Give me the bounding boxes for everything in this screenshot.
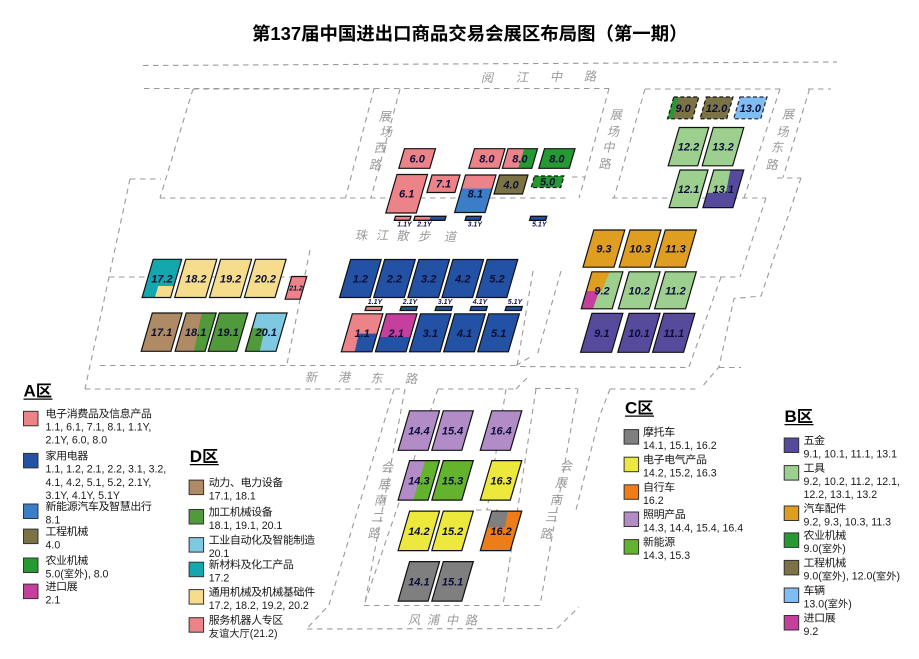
svg-text:4.2: 4.2 bbox=[454, 274, 470, 286]
svg-text:1.1: 1.1 bbox=[354, 328, 369, 340]
svg-text:14.4: 14.4 bbox=[408, 426, 429, 438]
svg-text:12.2: 12.2 bbox=[678, 142, 699, 154]
svg-text:19.2: 19.2 bbox=[220, 273, 241, 285]
svg-text:9.0: 9.0 bbox=[675, 103, 691, 115]
svg-text:8.0: 8.0 bbox=[512, 154, 528, 166]
svg-text:14.1, 15.1, 16.2: 14.1, 15.1, 16.2 bbox=[643, 440, 717, 452]
svg-text:11.3: 11.3 bbox=[665, 244, 686, 256]
svg-text:2.1: 2.1 bbox=[388, 328, 404, 340]
svg-text:12.0: 12.0 bbox=[706, 103, 728, 115]
svg-text:), 8.0: ), 8.0 bbox=[84, 568, 108, 580]
svg-text:), 12.0(: ), 12.0( bbox=[842, 571, 876, 583]
svg-text:15.3: 15.3 bbox=[442, 475, 463, 487]
svg-text:3.1Y, 4.1Y, 5.1Y: 3.1Y, 4.1Y, 5.1Y bbox=[46, 490, 120, 502]
svg-text:9.0(: 9.0( bbox=[804, 571, 823, 583]
svg-text:11.1: 11.1 bbox=[664, 328, 685, 340]
svg-text:11.2: 11.2 bbox=[665, 285, 686, 297]
svg-text:8.0: 8.0 bbox=[549, 154, 565, 166]
svg-text:5.1Y: 5.1Y bbox=[532, 221, 548, 228]
svg-text:4.1: 4.1 bbox=[456, 328, 472, 340]
svg-text:5.1Y: 5.1Y bbox=[508, 299, 524, 306]
svg-text:1.1Y: 1.1Y bbox=[397, 221, 413, 228]
svg-text:15.1: 15.1 bbox=[442, 576, 463, 588]
svg-text:9.3: 9.3 bbox=[596, 244, 611, 256]
svg-text:4.0: 4.0 bbox=[46, 539, 61, 551]
svg-text:20.1: 20.1 bbox=[209, 548, 230, 560]
svg-text:16.2: 16.2 bbox=[490, 526, 511, 538]
svg-text:3.2: 3.2 bbox=[421, 274, 436, 286]
svg-text:15.2: 15.2 bbox=[442, 526, 463, 538]
svg-text:1.1Y: 1.1Y bbox=[368, 299, 384, 306]
svg-text:9.2: 9.2 bbox=[804, 626, 819, 638]
svg-text:1.1, 1.2, 2.1, 2.2, 3.1, 3.2,: 1.1, 1.2, 2.1, 2.2, 3.1, 3.2, bbox=[46, 464, 167, 476]
svg-text:18.1, 19.1, 20.1: 18.1, 19.1, 20.1 bbox=[209, 520, 283, 532]
svg-text:14.3, 15.3: 14.3, 15.3 bbox=[643, 550, 690, 562]
svg-text:8.0: 8.0 bbox=[479, 154, 495, 166]
svg-text:17.2: 17.2 bbox=[151, 273, 172, 285]
svg-text:16.3: 16.3 bbox=[490, 475, 511, 487]
svg-text:13.0(: 13.0( bbox=[804, 598, 829, 610]
svg-text:12.1: 12.1 bbox=[678, 184, 699, 196]
svg-text:D: D bbox=[190, 447, 202, 466]
svg-text:): ) bbox=[897, 571, 901, 583]
svg-text:2.1Y: 2.1Y bbox=[402, 299, 419, 306]
svg-text:8.1: 8.1 bbox=[468, 189, 483, 201]
svg-text:7.1: 7.1 bbox=[436, 179, 451, 191]
svg-text:6.1: 6.1 bbox=[399, 189, 414, 201]
svg-text:14.3, 14.4, 15.4, 16.4: 14.3, 14.4, 15.4, 16.4 bbox=[643, 522, 743, 534]
svg-text:3.1: 3.1 bbox=[423, 328, 438, 340]
svg-text:3.1Y: 3.1Y bbox=[438, 299, 454, 306]
svg-text:14.2, 15.2, 16.3: 14.2, 15.2, 16.3 bbox=[643, 468, 717, 480]
svg-text:C: C bbox=[625, 399, 637, 418]
svg-text:4.0: 4.0 bbox=[502, 180, 519, 192]
svg-text:17.2: 17.2 bbox=[209, 573, 230, 585]
svg-text:(21.2): (21.2) bbox=[250, 628, 278, 640]
svg-text:5.0: 5.0 bbox=[540, 177, 556, 189]
svg-text:17.1: 17.1 bbox=[151, 327, 172, 339]
svg-text:15.4: 15.4 bbox=[442, 426, 463, 438]
svg-text:13.2: 13.2 bbox=[712, 142, 733, 154]
svg-text:): ) bbox=[848, 598, 852, 610]
svg-text:9.2, 10.2, 11.2, 12.1,: 9.2, 10.2, 11.2, 12.1, bbox=[804, 476, 900, 488]
svg-text:4.1Y: 4.1Y bbox=[472, 299, 489, 306]
svg-text:4.1, 4.2, 5.1, 5.2, 2.1Y,: 4.1, 4.2, 5.1, 5.2, 2.1Y, bbox=[46, 477, 152, 489]
svg-text:16.2: 16.2 bbox=[643, 495, 664, 507]
svg-text:2.1: 2.1 bbox=[46, 594, 61, 606]
svg-text:5.1: 5.1 bbox=[491, 328, 506, 340]
svg-text:10.1: 10.1 bbox=[628, 328, 649, 340]
svg-text:3.1Y: 3.1Y bbox=[468, 221, 484, 228]
svg-text:10.2: 10.2 bbox=[628, 285, 649, 297]
svg-text:1.1, 6.1, 7.1, 8.1, 1.1Y,: 1.1, 6.1, 7.1, 8.1, 1.1Y, bbox=[46, 422, 152, 434]
svg-text:17.1, 18.1: 17.1, 18.1 bbox=[209, 490, 256, 502]
svg-text:12.2, 13.1, 13.2: 12.2, 13.1, 13.2 bbox=[804, 489, 878, 501]
svg-text:18.2: 18.2 bbox=[185, 273, 206, 285]
svg-text:9.1, 10.1, 11.1, 13.1: 9.1, 10.1, 11.1, 13.1 bbox=[804, 448, 898, 460]
svg-text:13.0: 13.0 bbox=[740, 103, 762, 115]
svg-text:14.3: 14.3 bbox=[408, 475, 429, 487]
svg-text:20.1: 20.1 bbox=[254, 327, 276, 339]
svg-text:17.2, 18.2, 19.2, 20.2: 17.2, 18.2, 19.2, 20.2 bbox=[209, 600, 309, 612]
svg-text:6.0: 6.0 bbox=[410, 154, 426, 166]
svg-text:13.1: 13.1 bbox=[713, 184, 734, 196]
svg-text:14.2: 14.2 bbox=[408, 526, 429, 538]
svg-text:18.1: 18.1 bbox=[185, 327, 206, 339]
svg-text:): ) bbox=[842, 543, 846, 555]
svg-text:2.1Y: 2.1Y bbox=[416, 221, 433, 228]
svg-text:2.1Y, 6.0, 8.0: 2.1Y, 6.0, 8.0 bbox=[46, 435, 108, 447]
svg-text:9.2, 9.3, 10.3, 11.3: 9.2, 9.3, 10.3, 11.3 bbox=[804, 516, 892, 528]
svg-text:137: 137 bbox=[270, 23, 301, 44]
svg-text:1.2: 1.2 bbox=[353, 274, 368, 286]
svg-text:16.4: 16.4 bbox=[490, 426, 511, 438]
svg-text:8.1: 8.1 bbox=[46, 514, 61, 526]
svg-text:19.1: 19.1 bbox=[217, 327, 238, 339]
svg-text:14.1: 14.1 bbox=[408, 576, 429, 588]
svg-text:5.2: 5.2 bbox=[489, 274, 504, 286]
svg-text:A: A bbox=[24, 382, 36, 401]
svg-text:9.1: 9.1 bbox=[594, 328, 609, 340]
svg-text:B: B bbox=[785, 407, 797, 426]
svg-text:5.0(: 5.0( bbox=[46, 568, 65, 580]
svg-text:9.2: 9.2 bbox=[594, 285, 609, 297]
svg-text:2.2: 2.2 bbox=[386, 274, 402, 286]
svg-text:20.2: 20.2 bbox=[254, 273, 276, 285]
svg-text:10.3: 10.3 bbox=[629, 244, 650, 256]
svg-text:21.2: 21.2 bbox=[288, 285, 303, 292]
svg-text:9.0(: 9.0( bbox=[804, 543, 823, 555]
